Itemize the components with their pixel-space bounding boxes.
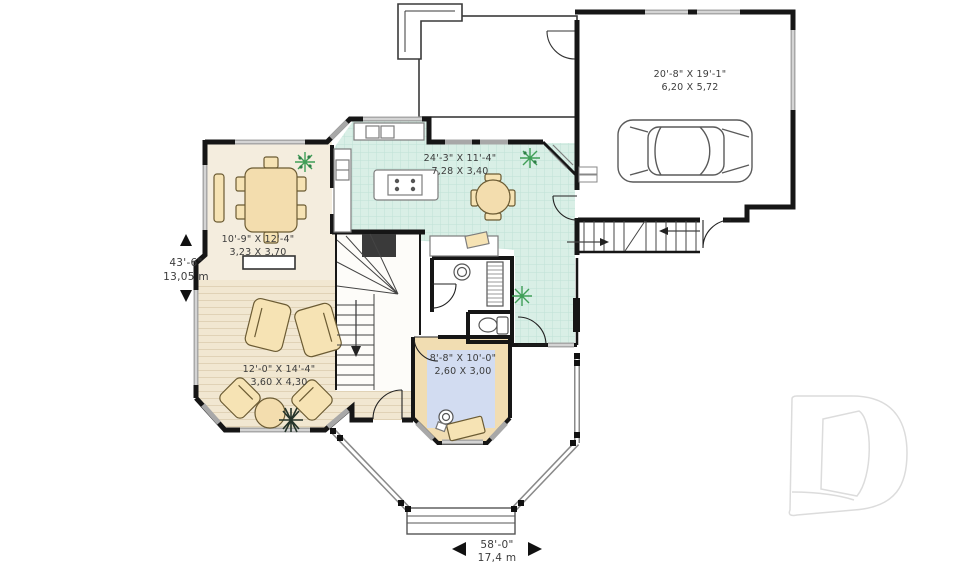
den-dims-metric: 2,60 X 3,00 <box>434 366 491 377</box>
buffet <box>214 174 224 222</box>
garage-dims-imperial: 20'-8" X 19'-1" <box>654 69 727 80</box>
kitchen-dims-imperial: 24'-3" X 11'-4" <box>424 153 497 164</box>
plant-hall <box>512 286 532 306</box>
plant-kitchen <box>520 148 540 168</box>
width-metric: 17,4 m <box>478 552 517 564</box>
rear-deck <box>398 4 577 117</box>
depth-imperial: 43'-6" <box>169 257 202 269</box>
dining-dims-metric: 3,23 X 3,70 <box>229 247 286 258</box>
kitchen-island <box>374 170 438 200</box>
width-imperial: 58'-0" <box>480 539 513 551</box>
dining-dims-imperial: 10'-9" X 12'-4" <box>222 234 295 245</box>
sink-basin-left <box>366 126 379 138</box>
garage-dims-metric: 6,20 X 5,72 <box>661 82 718 93</box>
depth-metric: 13,05 m <box>163 271 209 283</box>
sink-basin-right <box>381 126 394 138</box>
plant-dining <box>295 152 315 172</box>
floor-plan-drawing: 43'-6" 13,05 m 58'-0" 17,4 m 20'-8" X 19… <box>0 0 960 569</box>
plant-living <box>279 408 303 432</box>
hall-floor <box>514 143 575 345</box>
desk-chair <box>439 410 453 424</box>
porch-steps <box>407 508 515 534</box>
car <box>618 120 752 182</box>
living-dims-imperial: 12'-0" X 14'-4" <box>243 364 316 375</box>
dining-table <box>245 168 297 232</box>
coffee-table <box>255 398 285 428</box>
den-dims-imperial: 8'-8" X 10'-0" <box>430 353 496 364</box>
drummond-logo-watermark <box>789 396 907 515</box>
floor-plan-page: 43'-6" 13,05 m 58'-0" 17,4 m 20'-8" X 19… <box>0 0 960 569</box>
linen-closet <box>487 262 503 306</box>
kitchen-dims-metric: 7,28 X 3,40 <box>431 166 488 177</box>
living-dims-metric: 3,60 X 4,30 <box>250 377 307 388</box>
dimension-width: 58'-0" 17,4 m <box>452 539 542 564</box>
